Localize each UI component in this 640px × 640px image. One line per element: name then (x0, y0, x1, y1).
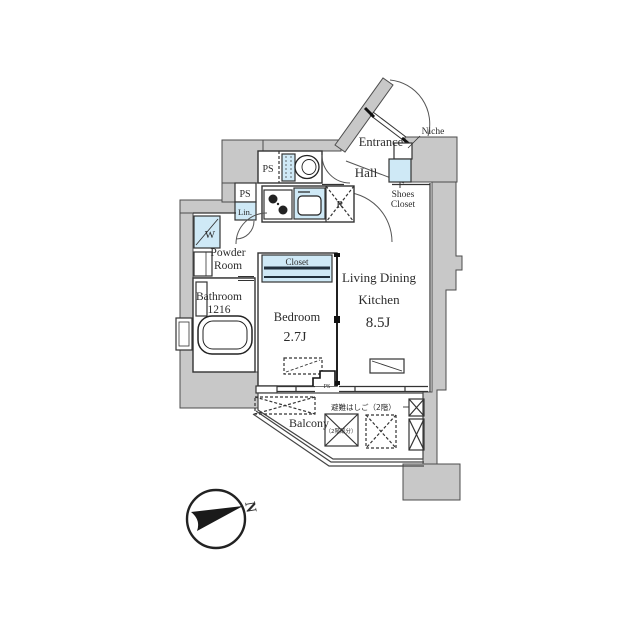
wall-seg-left (256, 386, 277, 393)
entrance-door-leaf-2 (373, 112, 406, 137)
bedroom-size-label: 2.7J (284, 330, 308, 345)
ldk-ceiling-diag (372, 361, 402, 371)
niche-label: Niche (422, 127, 445, 137)
washer-label: W (205, 229, 216, 241)
wall-top-band (263, 140, 341, 151)
second-floor-part-label: （2階部分） (326, 427, 357, 435)
toilet-tank (282, 154, 295, 181)
sliding-door-handle (334, 316, 340, 323)
compass-north-label: N (241, 500, 259, 514)
ldk-label-1: Living Dining (342, 270, 417, 285)
bathroom-label-2: 1216 (208, 304, 231, 316)
stove-burner-2 (279, 206, 288, 215)
vanity-cabinet (194, 252, 212, 276)
powder-room-label-1: Powder (210, 247, 245, 259)
sink-basin (298, 196, 321, 215)
bathroom-label-1: Bathroom (196, 291, 242, 303)
hall-label: Hall (355, 165, 378, 180)
sliding-door-tick-top (334, 253, 340, 257)
wall-utility-box (176, 318, 192, 350)
ldk-size-label: 8.5J (366, 315, 391, 331)
ps-toilet-label: PS (262, 164, 273, 175)
toilet-door-arc (322, 155, 350, 183)
ps-left-label: PS (239, 189, 250, 200)
shoes-closet-label-2: Closet (391, 200, 416, 210)
ps-small-label: PS (324, 384, 331, 390)
fridge-label: R (336, 199, 344, 211)
stove-knob (277, 203, 279, 205)
floor-plan-page: N Entrance Hall Niche Shoes Closet PS PS… (0, 0, 640, 640)
linen-label: Lin. (238, 207, 252, 217)
bathtub (198, 316, 252, 354)
entrance-label: Entrance (359, 135, 404, 149)
shoes-closet-box (389, 159, 411, 182)
wall-bottom-right-block (403, 464, 460, 500)
floor-plan-drawing: N Entrance Hall Niche Shoes Closet PS PS… (0, 0, 640, 640)
wall-top-left-block (222, 140, 263, 183)
shoes-closet-label-1: Shoes (392, 190, 415, 200)
wall-right-column (423, 182, 462, 464)
evacuation-ladder-label: 避難はしご（2階） (331, 402, 396, 412)
ldk-label-2: Kitchen (358, 292, 400, 307)
compass: N (187, 490, 259, 548)
closet-label: Closet (285, 257, 309, 267)
powder-room-label-2: Room (214, 260, 242, 272)
toilet-bowl (295, 156, 319, 179)
stove-burner-1 (269, 195, 278, 204)
wall-left-strip (222, 183, 235, 202)
balcony-label: Balcony (289, 416, 329, 430)
bedroom-label: Bedroom (274, 310, 321, 324)
